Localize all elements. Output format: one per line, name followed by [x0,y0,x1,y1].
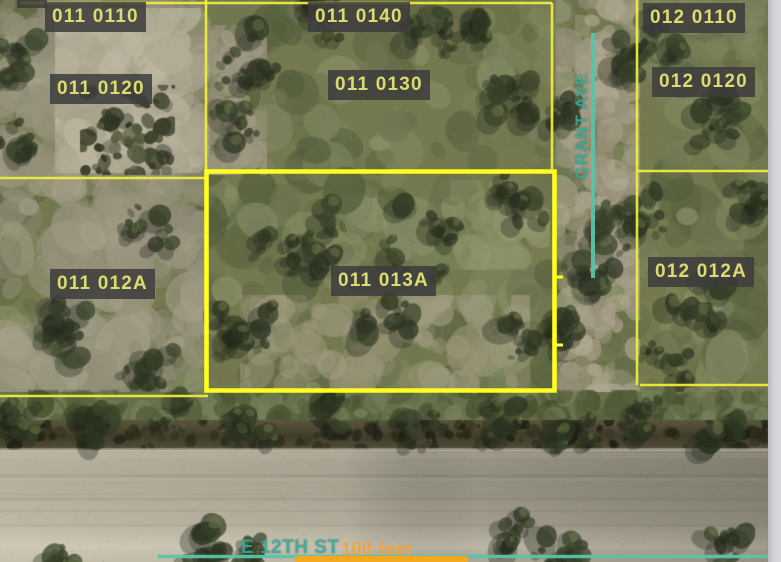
street-label-grant-ave: GRANT AVE [572,46,592,206]
parcel-label-012-012a: 012 012A [648,257,754,287]
street-label-e-12th-st: E 12TH ST [241,537,339,559]
scale-label: 100 feet [341,539,412,560]
parcel-label-011-0120: 011 0120 [50,74,152,104]
map-edge-strip [768,0,781,562]
parcel-label-012-0120: 012 0120 [652,67,755,97]
parcel-label-011-012a: 011 012A [50,269,155,299]
parcel-label-011-0140: 011 0140 [308,2,410,32]
parcel-label-011-0110: 011 0110 [45,2,146,32]
label-fragment [17,0,47,8]
parcel-label-011-013a: 011 013A [331,266,436,296]
parcel-label-011-0130: 011 0130 [328,70,430,100]
parcel-label-012-0110: 012 0110 [643,3,745,33]
map-viewport[interactable]: GRANT AVE E 12TH ST 100 feet 011 0110011… [0,0,781,562]
